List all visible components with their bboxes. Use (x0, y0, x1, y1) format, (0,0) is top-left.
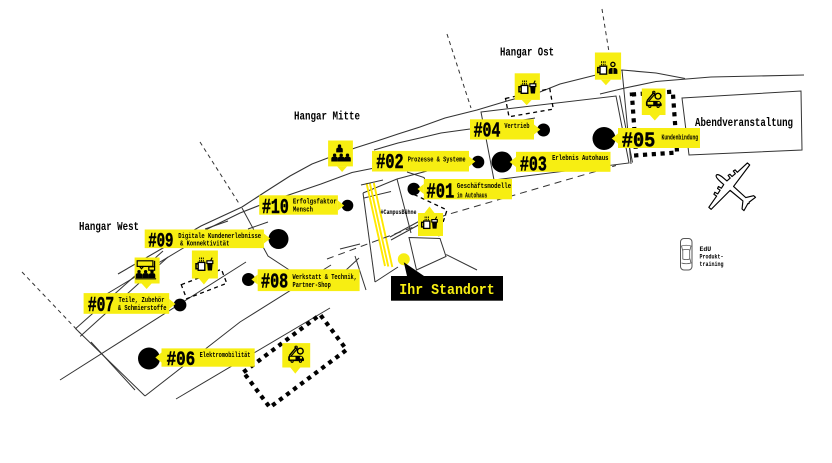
svg-text:Vertrieb: Vertrieb (504, 123, 529, 131)
svg-text:Abendveranstaltung: Abendveranstaltung (695, 116, 793, 130)
svg-text:#08: #08 (261, 272, 288, 295)
svg-text:Ihr Standort: Ihr Standort (399, 282, 494, 299)
svg-text:im Autohaus: im Autohaus (457, 192, 487, 200)
svg-text:Erfolgsfaktor: Erfolgsfaktor (293, 199, 337, 207)
svg-text:Mensch: Mensch (293, 207, 313, 215)
svg-text:#02: #02 (376, 152, 403, 175)
svg-text:#07: #07 (88, 295, 114, 318)
svg-text:#04: #04 (474, 121, 501, 144)
svg-text:Elektromobilität: Elektromobilität (200, 352, 251, 360)
svg-text:#09: #09 (148, 230, 173, 253)
svg-text:#CampusBühne: #CampusBühne (381, 209, 417, 216)
svg-text:EdU: EdU (700, 246, 712, 253)
svg-text:#01: #01 (427, 181, 455, 204)
svg-text:Partner-Shop: Partner-Shop (293, 282, 331, 290)
svg-text:training: training (700, 261, 724, 268)
svg-text:#10: #10 (262, 197, 289, 220)
svg-text:Hangar West: Hangar West (79, 220, 139, 234)
svg-text:#03: #03 (520, 154, 547, 177)
svg-text:Geschäftsmodelle: Geschäftsmodelle (457, 183, 511, 191)
svg-text:& Schmierstoffe: & Schmierstoffe (118, 305, 167, 313)
svg-text:Hangar Ost: Hangar Ost (500, 46, 554, 60)
svg-text:Kundenbindung: Kundenbindung (662, 135, 699, 143)
svg-text:Werkstatt & Technik,: Werkstatt & Technik, (293, 274, 358, 282)
svg-text:Teile, Zubehör: Teile, Zubehör (119, 297, 165, 305)
svg-text:Hangar Mitte: Hangar Mitte (294, 110, 360, 124)
svg-text:#06: #06 (167, 349, 196, 372)
svg-text:Erlebnis Autohaus: Erlebnis Autohaus (552, 155, 608, 163)
svg-text:#05: #05 (622, 130, 656, 153)
svg-text:& Konnektivität: & Konnektivität (180, 240, 229, 248)
svg-text:Produkt-: Produkt- (700, 254, 724, 261)
svg-text:Prozesse & Systeme: Prozesse & Systeme (408, 157, 466, 165)
